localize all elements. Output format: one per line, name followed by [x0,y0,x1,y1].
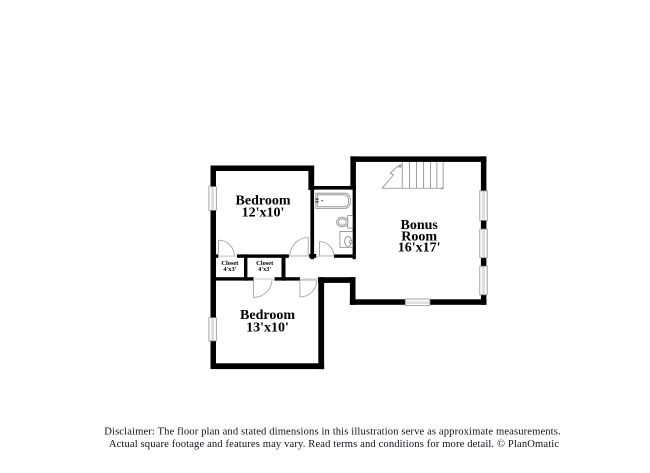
svg-text:Actual square footage and feat: Actual square footage and features may v… [109,439,559,450]
svg-text:4'x3': 4'x3' [223,266,236,273]
svg-text:4'x3': 4'x3' [258,266,271,273]
svg-text:Disclaimer: The floor plan and: Disclaimer: The floor plan and stated di… [104,427,561,438]
svg-text:13'x10': 13'x10' [246,320,289,335]
svg-text:16'x17': 16'x17' [398,241,441,256]
svg-text:12'x10': 12'x10' [242,205,285,220]
